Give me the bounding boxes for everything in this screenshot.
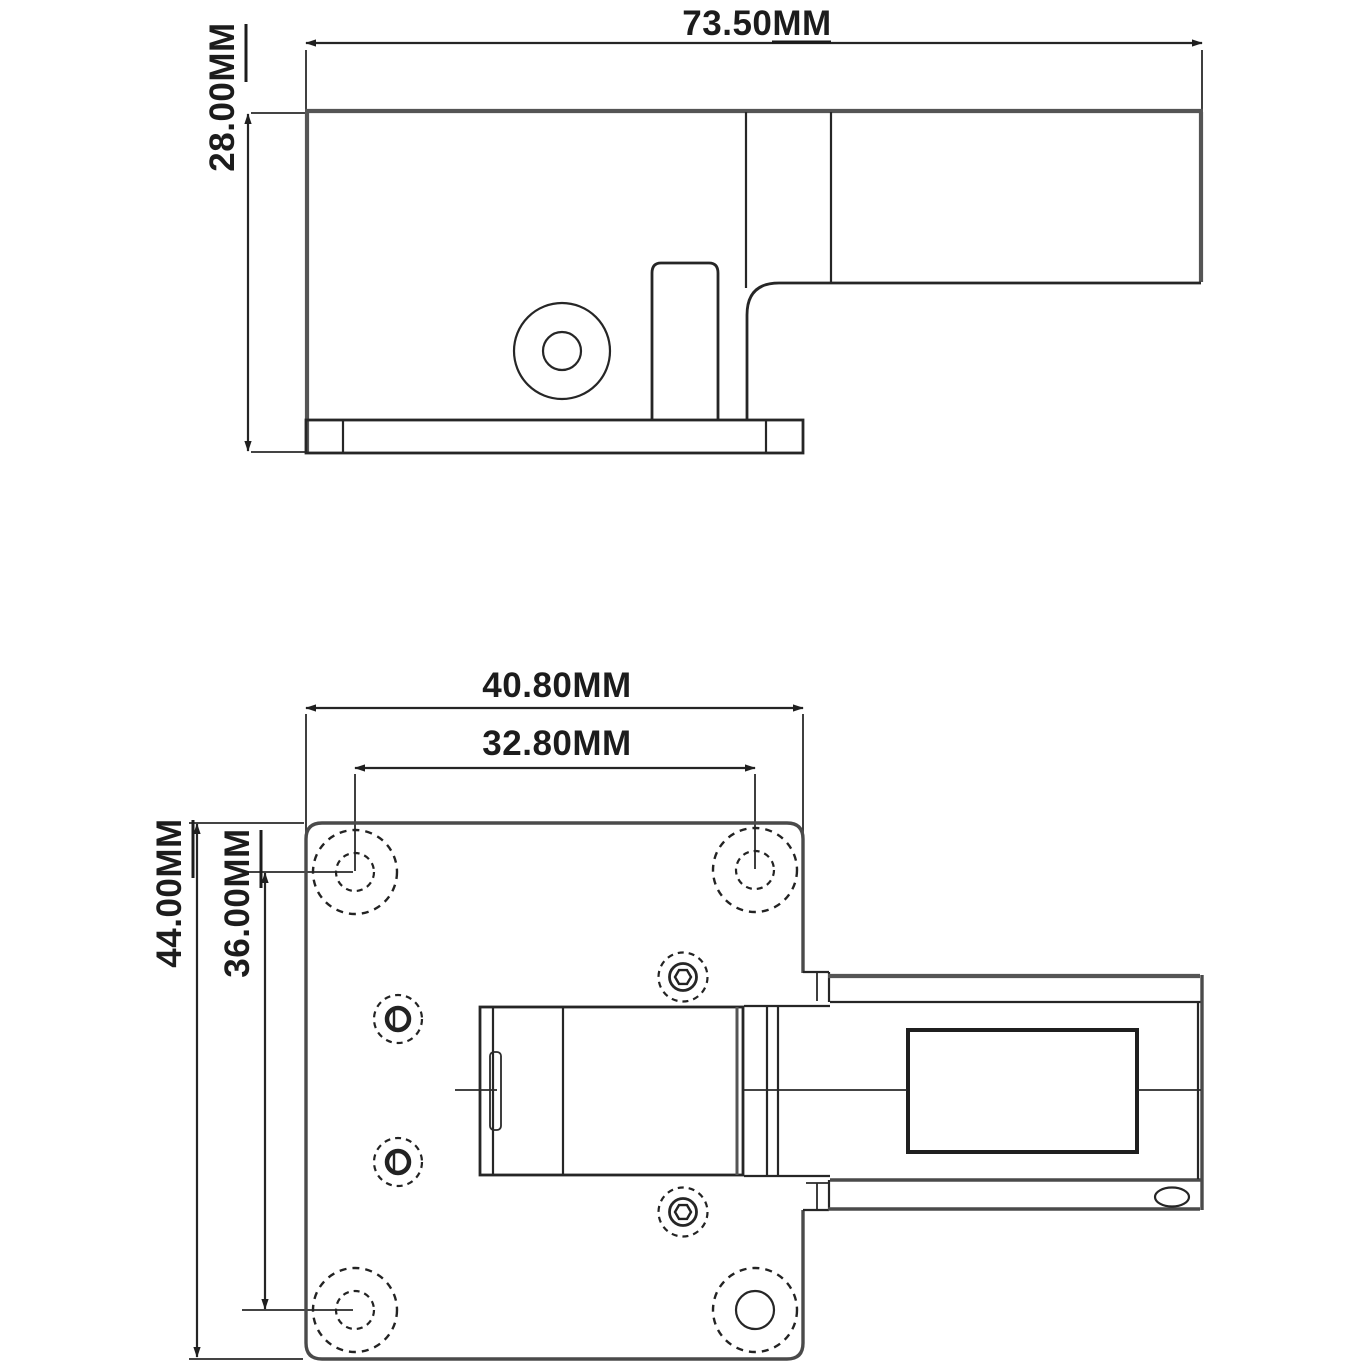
screw-clearance-circle — [374, 1138, 422, 1186]
mechanism-outline — [480, 1007, 743, 1175]
dim-overall-height: 28.00MM — [203, 22, 305, 452]
screw-head — [670, 964, 697, 991]
dim-overall-height-label-group: 28.00MM — [203, 22, 246, 171]
side-view-base-plate — [306, 420, 803, 453]
hex-socket — [675, 1205, 691, 1219]
side-view: 73.50MM 28.00MM — [203, 4, 1203, 453]
dim-hole-spacing-x-label: 32.80MM — [482, 724, 631, 763]
screw-clearance-circle — [659, 1188, 708, 1237]
drawing-page: 73.50MM 28.00MM — [0, 0, 1365, 1365]
dim-hole-spacing-y-label: 36.00MM — [218, 828, 257, 977]
screw-head — [670, 1199, 697, 1226]
dim-plate-height-label-group: 44.00MM — [150, 818, 193, 967]
dim-overall-length: 73.50MM — [306, 4, 1202, 109]
pivot-neck — [744, 972, 830, 1210]
dim-plate-width-label: 40.80MM — [482, 666, 631, 705]
arm-lightening-slot — [1155, 1188, 1189, 1207]
side-view-pin — [652, 263, 718, 420]
dim-plate-height-label: 44.00MM — [150, 818, 189, 967]
dim-overall-height-label: 28.00MM — [203, 22, 242, 171]
arm-cutout-window — [908, 1030, 1137, 1152]
side-view-arm-bottom-and-fillet — [747, 283, 1201, 419]
dim-hole-spacing-y: 36.00MM — [218, 828, 353, 1310]
cap-screw-lower — [659, 1188, 708, 1237]
hole-boss-circle — [713, 1268, 797, 1352]
dim-hole-spacing-x: 32.80MM — [355, 724, 755, 871]
dim-hole-spacing-y-label-group: 36.00MM — [218, 828, 261, 977]
mount-hole-bottom-right — [713, 1268, 797, 1352]
plan-view: 40.80MM 32.80MM 44.00MM 36.00MM — [150, 666, 1202, 1359]
screw-clearance-circle — [659, 953, 708, 1002]
side-view-boss-hole — [543, 332, 581, 370]
screw-head — [387, 1151, 409, 1173]
technical-drawing: 73.50MM 28.00MM — [0, 0, 1365, 1365]
dim-overall-length-label: 73.50MM — [682, 4, 831, 43]
side-view-boss-circle — [514, 303, 610, 399]
mechanism-block — [455, 1007, 743, 1175]
screw-clearance-circle — [374, 995, 422, 1043]
strut-arm — [744, 975, 1202, 1210]
hole-circle — [736, 1291, 774, 1329]
mechanism-latch-tab — [490, 1052, 501, 1130]
screw-hole-left-lower — [374, 1138, 422, 1186]
cap-screw-upper — [659, 953, 708, 1002]
screw-head — [387, 1008, 409, 1030]
screw-hole-left-upper — [374, 995, 422, 1043]
hex-socket — [675, 970, 691, 984]
